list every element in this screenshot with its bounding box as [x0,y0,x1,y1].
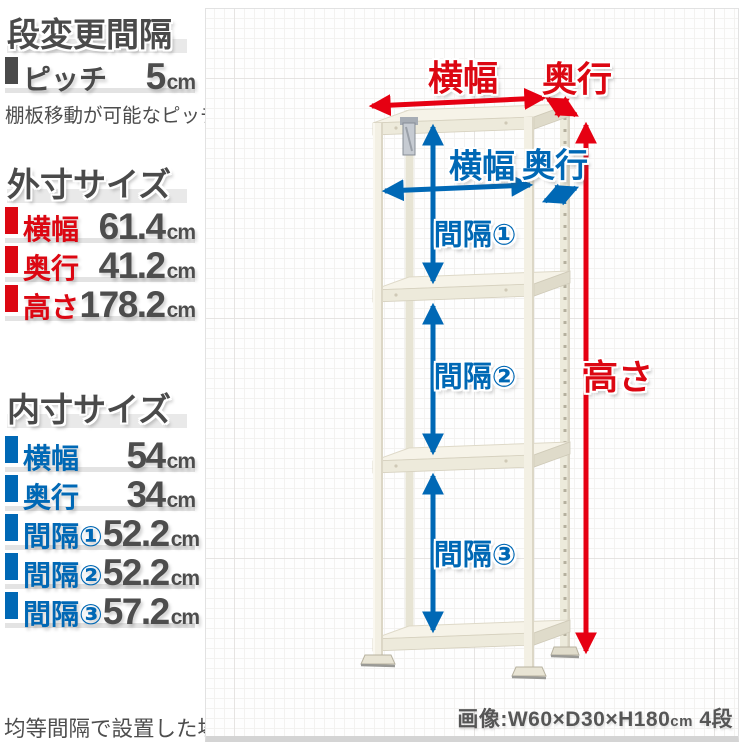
inner-depth-value: 34 [126,474,164,516]
outer-depth-dim-label: 奥行 [542,63,612,98]
inner-section-heading: 内寸サイズ [5,383,197,429]
outer-depth-value: 41.2 [99,245,165,287]
outer-depth-label: 奥行 [23,247,79,287]
spec-sidebar: 段変更間隔 ピッチ 5 cm 棚板移動が可能なピッチ 外寸サイズ 横幅 61.4… [0,0,202,750]
outer-height-unit: cm [167,299,195,323]
inner-width-dim-label: 横幅 [449,150,515,183]
inner-section-title: 内寸サイズ [7,383,171,431]
corner-bracket [400,117,418,155]
outer-section-title: 外寸サイズ [7,158,171,206]
row-marker [5,57,18,84]
inner-row-gap3: 間隔③ 57.2 cm [5,591,195,628]
inner-row-width: 横幅 54 cm [5,435,195,472]
caption-tier-count: 4段 [693,708,733,731]
pitch-row: ピッチ 5 cm [5,56,195,93]
outer-width-value: 61.4 [99,206,165,248]
gap1-label: 間隔① [23,515,103,555]
pitch-section-title: 段変更間隔 [7,8,172,56]
gap1-unit: cm [171,528,199,552]
gap3-unit: cm [171,606,199,630]
pitch-section: 段変更間隔 ピッチ 5 cm 棚板移動が可能なピッチ [5,8,197,128]
outer-depth-unit: cm [167,260,195,284]
front-left-post [373,123,383,657]
gap2-value: 52.2 [103,552,169,594]
outer-width-label: 横幅 [23,208,79,248]
gap2-label: 間隔② [23,554,103,594]
shelf-feet [361,647,579,678]
gap2-dim-label: 間隔② [434,364,517,393]
outer-height-value: 178.2 [80,284,165,326]
inner-size-section: 内寸サイズ 横幅 54 cm 奥行 34 cm 間隔① 52.2 cm [5,383,197,630]
pitch-note: 棚板移動が可能なピッチ [5,99,197,128]
diagram-panel: 横幅 奥行 高さ 横幅 奥行 間隔① 間隔② 間隔③ 画像:W60×D30×H1… [205,8,739,742]
inner-depth-label: 奥行 [23,476,79,516]
outer-row-depth: 奥行 41.2 cm [5,245,195,282]
inner-row-depth: 奥行 34 cm [5,474,195,511]
caption-unit: cm [670,713,693,730]
outer-row-height: 高さ 178.2 cm [5,284,195,321]
inner-row-gap2: 間隔② 52.2 cm [5,552,195,589]
gap3-label: 間隔③ [23,593,103,633]
gap1-value: 52.2 [103,513,169,555]
gap3-value: 57.2 [103,591,169,633]
inner-width-value: 54 [126,435,164,477]
gap3-dim-label: 間隔③ [434,542,517,571]
outer-row-width: 横幅 61.4 cm [5,206,195,243]
post-edge-shade [568,104,571,647]
pitch-label: ピッチ [23,58,107,98]
inner-width-label: 横幅 [23,437,79,477]
gap1-dim-label: 間隔① [434,222,517,251]
outer-height-dim-label: 高さ [583,361,653,396]
row-marker [5,246,18,273]
row-marker [5,592,18,619]
row-marker [5,285,18,312]
inner-row-gap1: 間隔① 52.2 cm [5,513,195,550]
image-spec-caption: 画像:W60×D30×H180cm 4段 [457,703,733,733]
front-right-post [524,117,534,669]
outer-width-dim-label: 横幅 [428,62,498,97]
outer-section-heading: 外寸サイズ [5,158,197,204]
row-marker [5,475,18,502]
outer-size-section: 外寸サイズ 横幅 61.4 cm 奥行 41.2 cm 高さ 178.2 cm [5,158,197,323]
caption-text: 画像:W60×D30×H180 [457,708,670,731]
row-marker [5,207,18,234]
row-marker [5,514,18,541]
shelf-board-3 [373,442,570,473]
inner-depth-dim-label: 奥行 [522,149,588,182]
outer-height-label: 高さ [23,286,79,326]
gap2-unit: cm [171,567,199,591]
shelf-board-2 [373,271,570,302]
row-marker [5,553,18,580]
pitch-value: 5 [146,56,165,98]
shelf-board-bottom [373,620,570,651]
row-marker [5,436,18,463]
outer-width-unit: cm [167,221,195,245]
inner-depth-unit: cm [167,489,195,513]
outer-width-arrow [372,98,543,106]
pitch-unit: cm [167,71,195,95]
inner-width-unit: cm [167,450,195,474]
product-spec-image: 段変更間隔 ピッチ 5 cm 棚板移動が可能なピッチ 外寸サイズ 横幅 61.4… [0,0,750,750]
pitch-section-heading: 段変更間隔 [5,8,197,54]
